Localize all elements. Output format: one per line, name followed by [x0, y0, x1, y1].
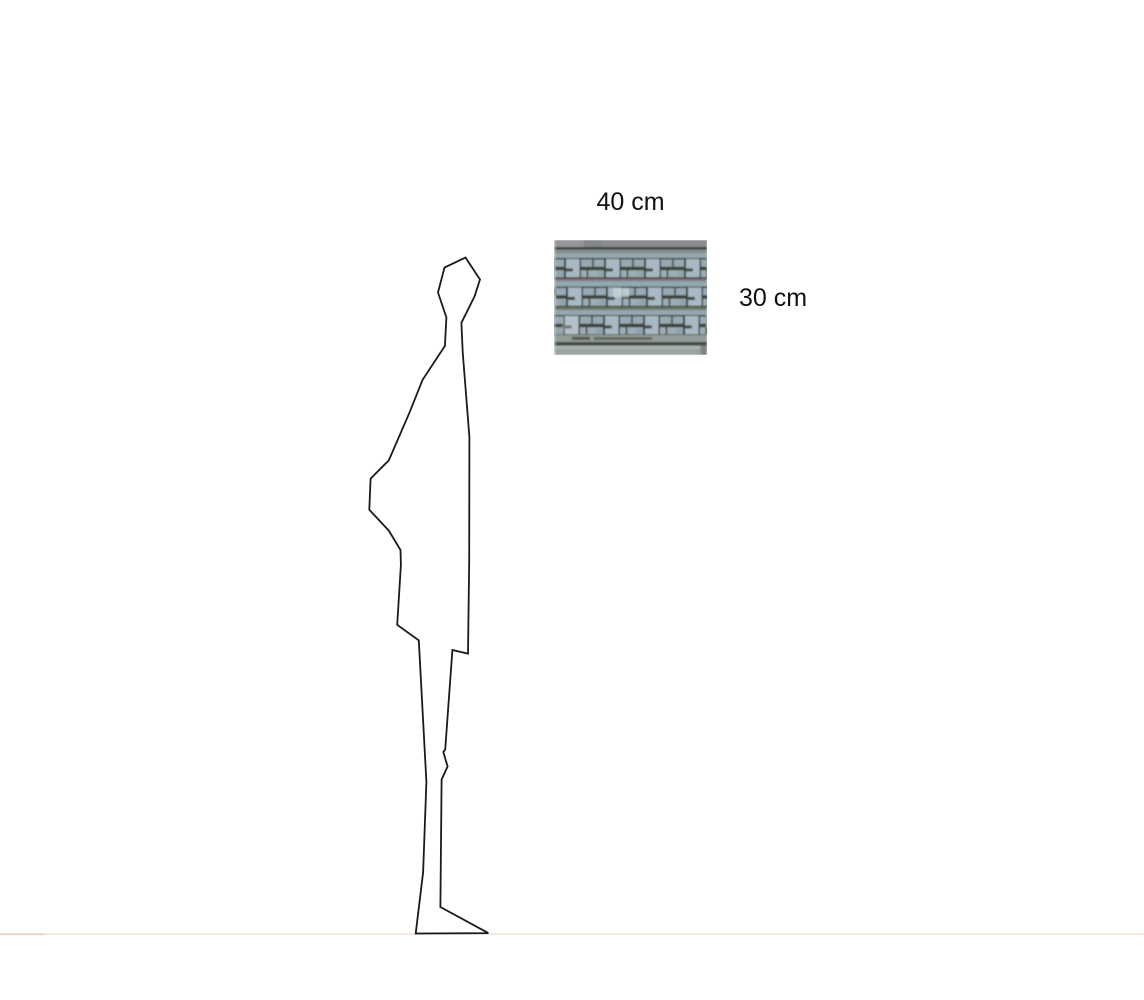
- svg-text:40 cm: 40 cm: [596, 188, 664, 216]
- svg-text:30 cm: 30 cm: [739, 284, 807, 312]
